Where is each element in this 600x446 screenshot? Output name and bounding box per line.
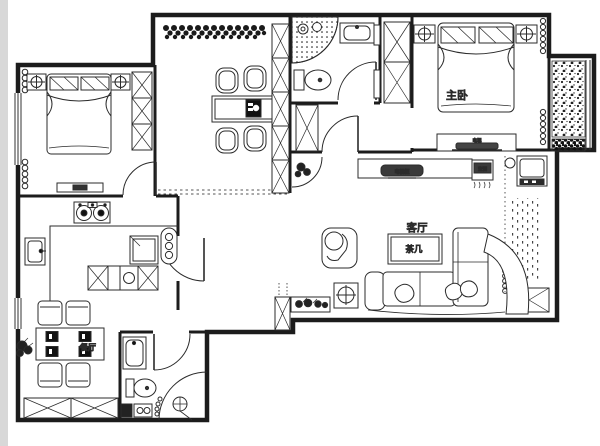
washing-machine-icon bbox=[517, 156, 547, 186]
side-table-icon bbox=[334, 283, 358, 308]
pebble-floor-icon bbox=[552, 61, 585, 137]
dining-chair-icon bbox=[38, 363, 62, 387]
page-edge-strip bbox=[0, 0, 8, 446]
bedroom-tv-label: 电视 bbox=[473, 137, 482, 144]
study-chair-icon bbox=[216, 68, 238, 93]
tv-cabinet-icon bbox=[358, 159, 472, 178]
dining-chair-icon bbox=[66, 301, 90, 325]
radiator-icon bbox=[161, 228, 177, 264]
tea-table-label: 茶几 bbox=[405, 244, 423, 255]
study-chair-icon bbox=[244, 126, 266, 151]
living-room-label: 客厅 bbox=[407, 221, 428, 234]
nightstand-lamp-icon bbox=[414, 25, 435, 43]
hall-cabinet-icon bbox=[275, 297, 290, 330]
study-chair-icon bbox=[216, 128, 238, 153]
toilet-icon bbox=[126, 379, 156, 397]
sliding-closet-icon bbox=[384, 22, 410, 103]
master-bedroom-label: 主卧 bbox=[446, 89, 468, 102]
dining-chair-icon bbox=[38, 301, 62, 325]
fridge-icon bbox=[130, 236, 158, 264]
toilet-icon bbox=[294, 70, 331, 90]
nightstand-lamp-icon bbox=[111, 74, 130, 90]
bed-icon bbox=[47, 74, 111, 154]
ac-label: 空调 bbox=[478, 166, 487, 173]
dining-chair-icon bbox=[66, 363, 90, 387]
kitchen-sink-icon bbox=[25, 238, 46, 265]
armchair-icon bbox=[322, 228, 357, 268]
dresser-icon bbox=[57, 183, 103, 192]
shoe-cabinet-icon bbox=[296, 105, 318, 151]
shelf-icon bbox=[374, 25, 380, 45]
wardrobe-icon bbox=[132, 72, 152, 150]
tv-cabinet-label: 电视柜 bbox=[394, 169, 409, 176]
floor-plan: 主卧 电视 电视柜 bbox=[0, 0, 600, 446]
storage-cabinet-icon bbox=[24, 398, 118, 418]
study-table-icon bbox=[212, 96, 278, 122]
gas-stove-icon bbox=[74, 202, 110, 223]
storage-cabinet-icon bbox=[272, 24, 289, 193]
planting-strip-icon bbox=[552, 139, 585, 151]
planter-icon bbox=[291, 297, 330, 312]
study-chair-icon bbox=[244, 66, 266, 91]
kitchen-lower-cabinet-icon bbox=[88, 266, 158, 290]
entry-door bbox=[322, 116, 358, 152]
wash-basin-icon bbox=[121, 404, 152, 417]
shelf-icon bbox=[374, 70, 380, 98]
wash-basin-icon bbox=[340, 23, 374, 43]
nightstand-lamp-icon bbox=[516, 25, 537, 43]
bathtub-icon bbox=[123, 337, 146, 369]
nightstand-lamp-icon bbox=[27, 74, 46, 90]
dining-room-label: 餐厅 bbox=[80, 343, 96, 352]
column-icon bbox=[505, 158, 515, 168]
